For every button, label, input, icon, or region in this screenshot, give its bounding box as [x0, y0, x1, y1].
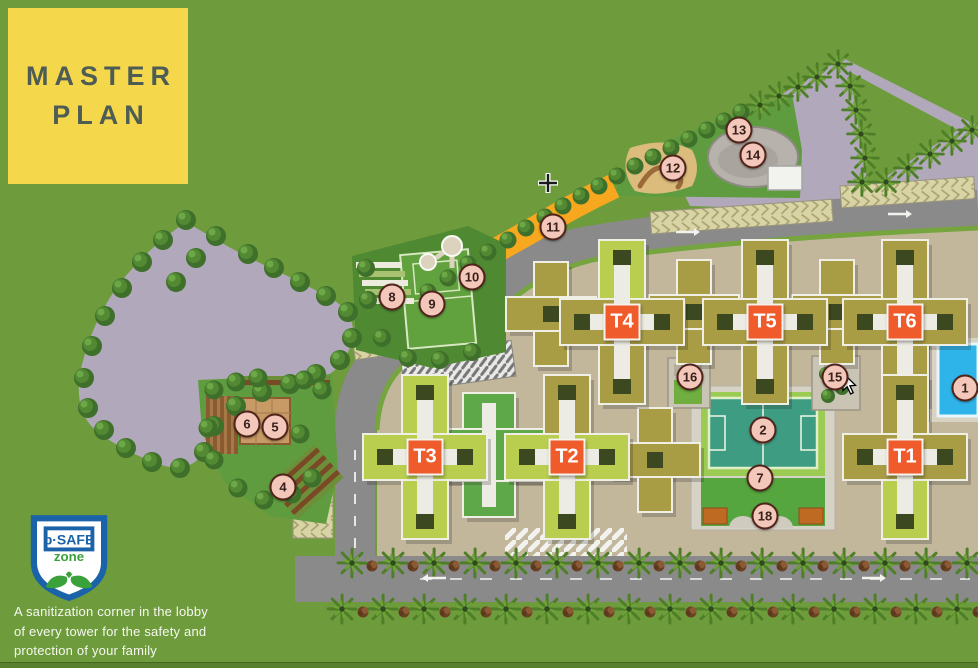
- title-panel: MASTER PLAN: [8, 8, 188, 184]
- shield-icon: b·SAFE zone: [30, 514, 108, 602]
- tower-label-T3: T3: [407, 439, 444, 476]
- caption-line-3: protection of your family: [14, 641, 229, 661]
- map-marker-12: 12: [660, 155, 687, 182]
- badge-caption: A sanitization corner in the lobby of ev…: [14, 602, 229, 661]
- crosshair-cursor: [538, 173, 558, 193]
- map-marker-4: 4: [270, 474, 297, 501]
- master-plan-image: T4T5T6T3T2T1124567891011121314151618 MAS…: [0, 0, 978, 668]
- map-marker-16: 16: [677, 364, 704, 391]
- map-marker-11: 11: [540, 214, 567, 241]
- map-marker-13: 13: [726, 117, 753, 144]
- caption-line-2: of every tower for the safety and: [14, 622, 229, 642]
- page-title-line2: PLAN: [46, 96, 150, 135]
- tower-label-T2: T2: [549, 439, 586, 476]
- tower-label-T5: T5: [747, 304, 784, 341]
- map-marker-5: 5: [262, 414, 289, 441]
- bsafe-zone-badge: b·SAFE zone: [30, 514, 108, 602]
- tower-label-T4: T4: [604, 304, 641, 341]
- map-marker-14: 14: [740, 142, 767, 169]
- map-marker-7: 7: [747, 465, 774, 492]
- map-marker-9: 9: [419, 291, 446, 318]
- map-marker-6: 6: [234, 411, 261, 438]
- tower-label-T1: T1: [887, 439, 924, 476]
- map-marker-2: 2: [750, 417, 777, 444]
- badge-brand-text: b·SAFE: [44, 532, 95, 548]
- map-marker-10: 10: [459, 264, 486, 291]
- tower-label-T6: T6: [887, 304, 924, 341]
- badge-zone-text: zone: [54, 549, 84, 564]
- map-marker-18: 18: [752, 503, 779, 530]
- map-marker-15: 15: [822, 364, 849, 391]
- map-marker-1: 1: [952, 375, 978, 402]
- map-marker-8: 8: [379, 284, 406, 311]
- page-title-line1: MASTER: [20, 57, 176, 96]
- caption-line-1: A sanitization corner in the lobby: [14, 602, 229, 622]
